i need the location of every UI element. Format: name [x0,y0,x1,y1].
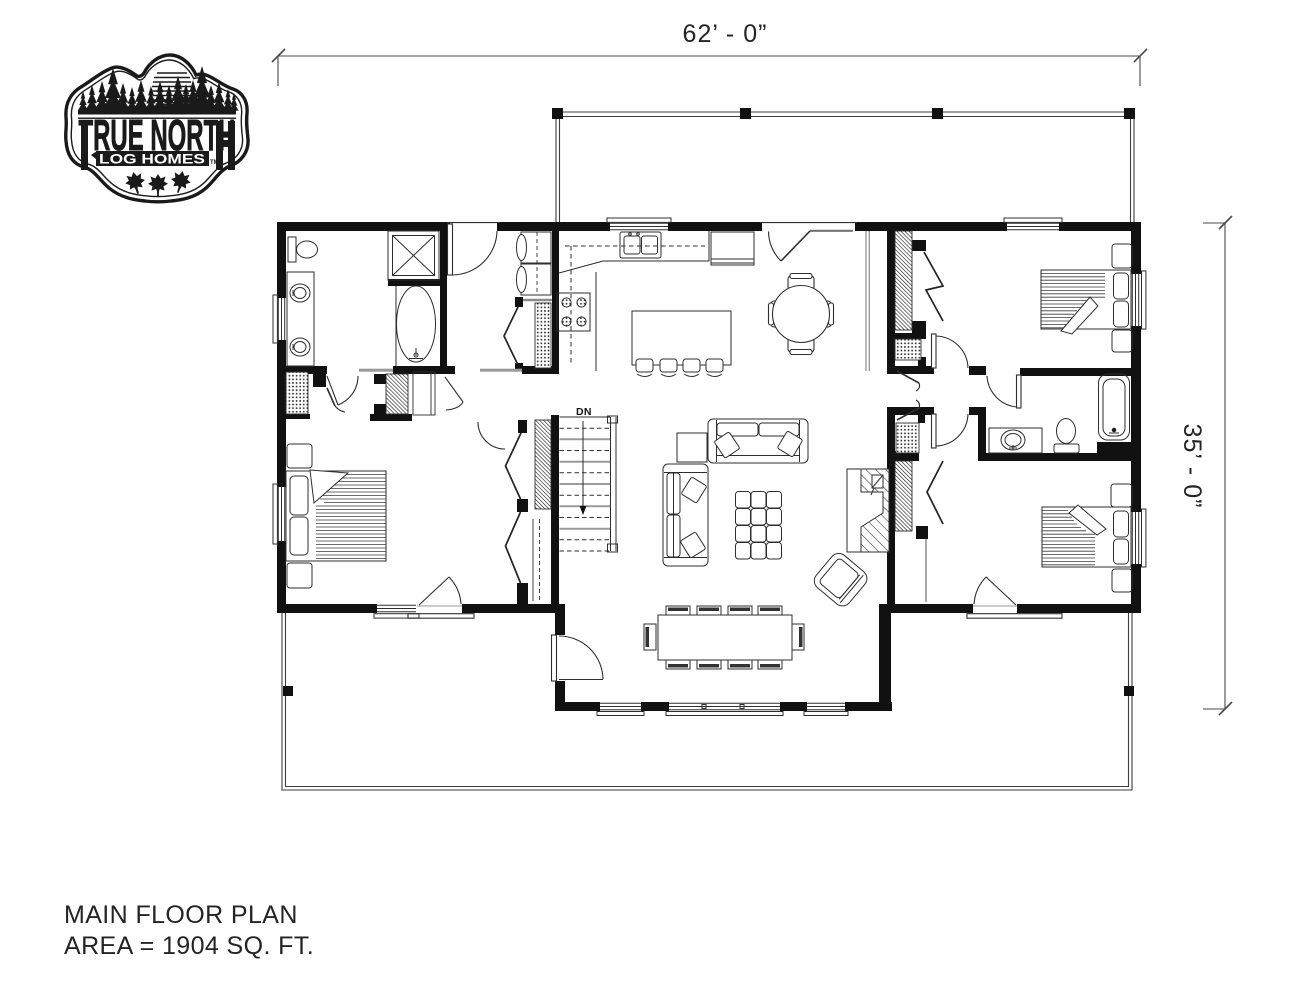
svg-text:AREA = 1904 SQ. FT.: AREA = 1904 SQ. FT. [64,932,314,960]
svg-text:35’ - 0”: 35’ - 0” [1178,424,1206,509]
svg-text:62’ - 0”: 62’ - 0” [683,20,768,48]
svg-text:TM: TM [210,160,219,166]
svg-text:LOG HOMES: LOG HOMES [99,151,205,167]
svg-text:MAIN FLOOR PLAN: MAIN FLOOR PLAN [64,901,298,929]
svg-text:DN: DN [576,406,592,418]
